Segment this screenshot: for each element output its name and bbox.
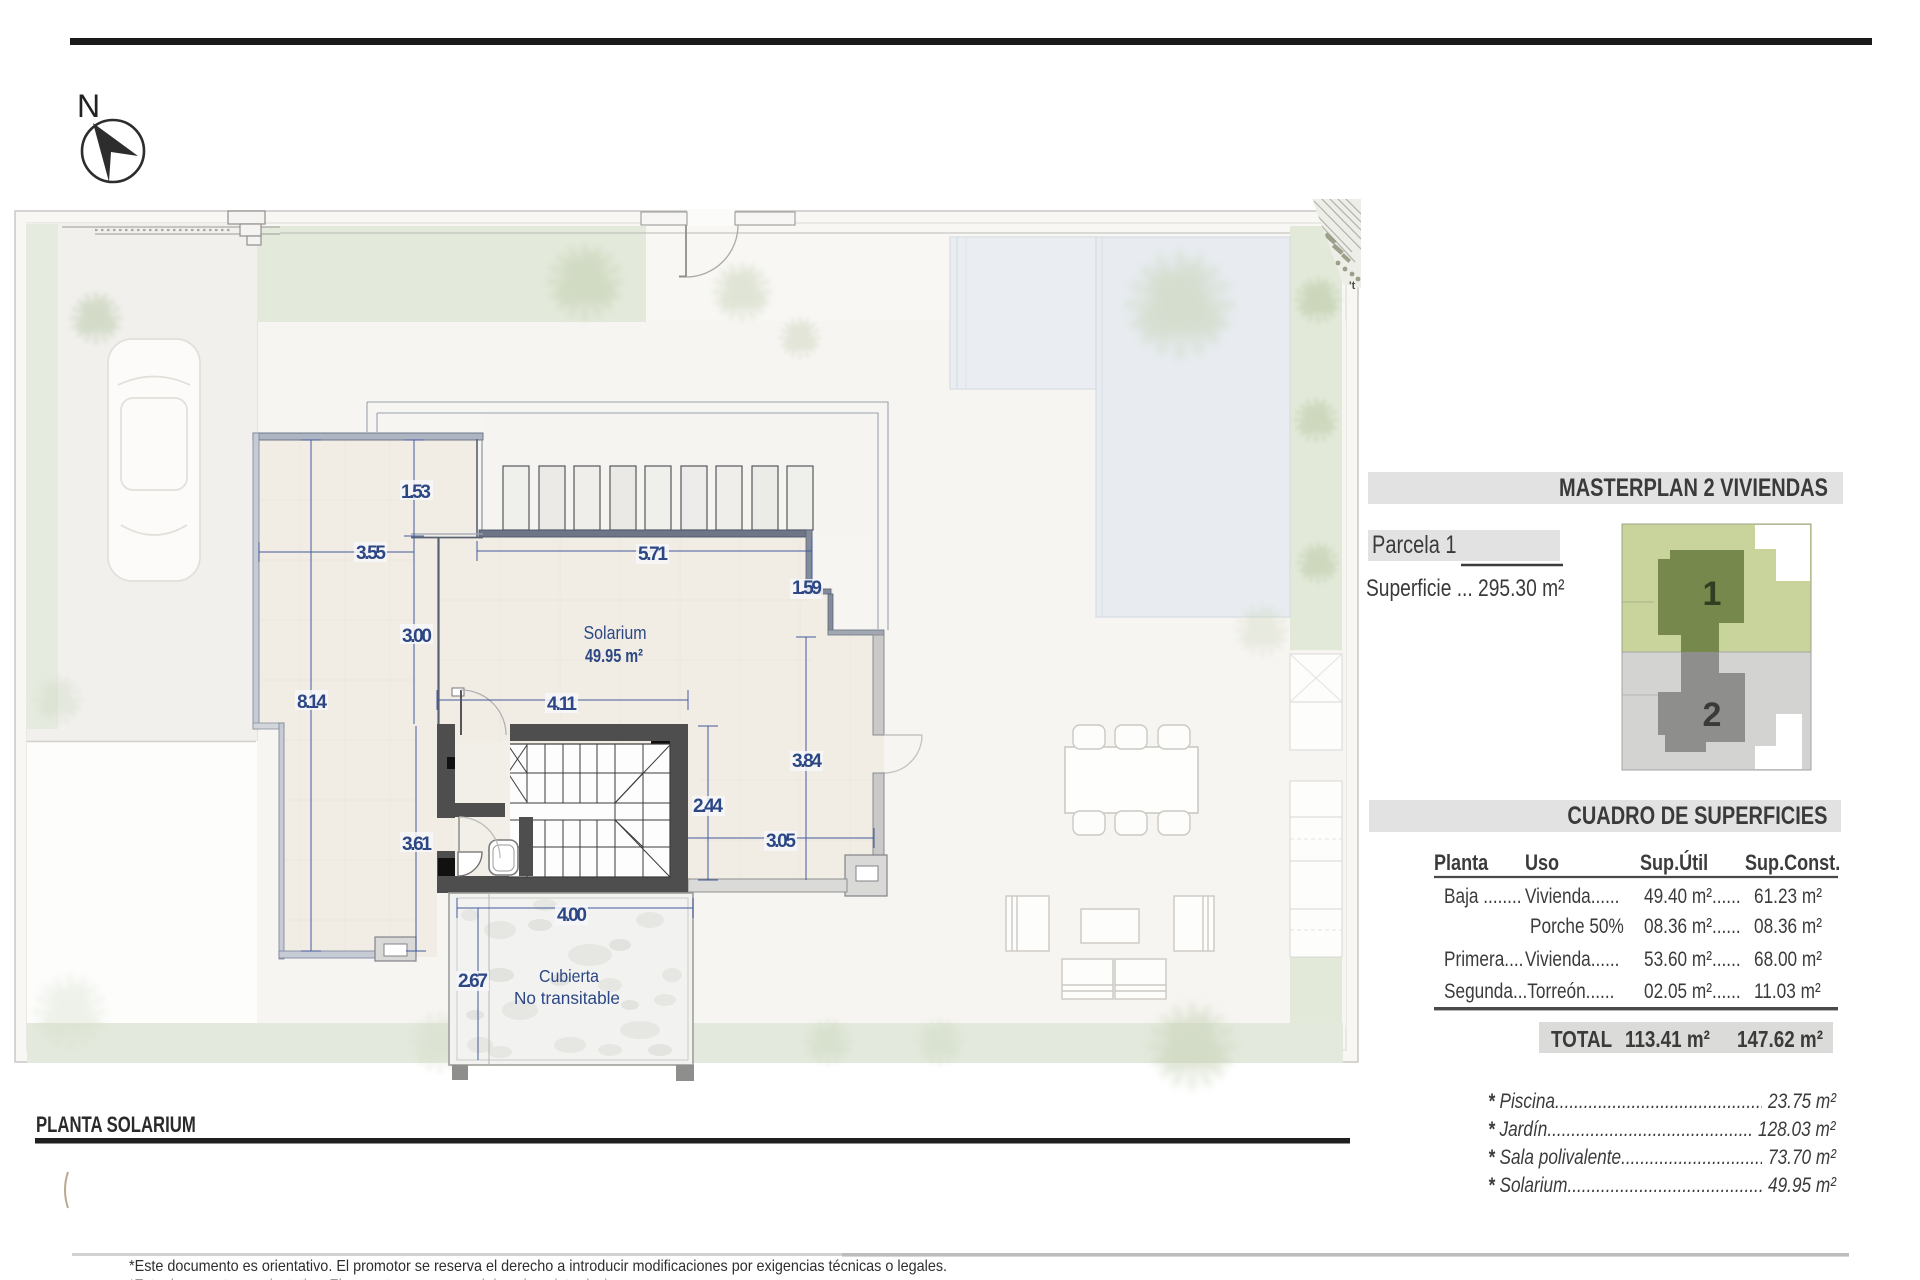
svg-text:3.05: 3.05	[766, 831, 796, 852]
svg-text:No transitable: No transitable	[514, 988, 620, 1008]
svg-text:1: 1	[1703, 575, 1722, 613]
svg-text:5.71: 5.71	[638, 544, 668, 565]
svg-text:49.95 m²: 49.95 m²	[585, 645, 643, 666]
svg-text:2.44: 2.44	[693, 796, 723, 817]
svg-text:1.59: 1.59	[792, 578, 822, 599]
svg-text:Cubierta: Cubierta	[539, 966, 599, 986]
svg-text:3.55: 3.55	[356, 543, 386, 564]
svg-text:2: 2	[1703, 696, 1722, 734]
svg-text:3.00: 3.00	[402, 626, 432, 647]
svg-text:4.00: 4.00	[557, 905, 587, 926]
svg-text:4.11: 4.11	[547, 694, 577, 715]
svg-text:8.14: 8.14	[297, 692, 327, 713]
svg-text:3.61: 3.61	[402, 834, 432, 855]
svg-text:Solarium: Solarium	[584, 622, 647, 643]
svg-text:1.53: 1.53	[401, 482, 431, 503]
svg-text:N: N	[77, 88, 100, 124]
svg-text:3.84: 3.84	[792, 751, 822, 772]
svg-text:2.67: 2.67	[458, 971, 488, 992]
svg-text:'t: 't	[1349, 280, 1356, 292]
